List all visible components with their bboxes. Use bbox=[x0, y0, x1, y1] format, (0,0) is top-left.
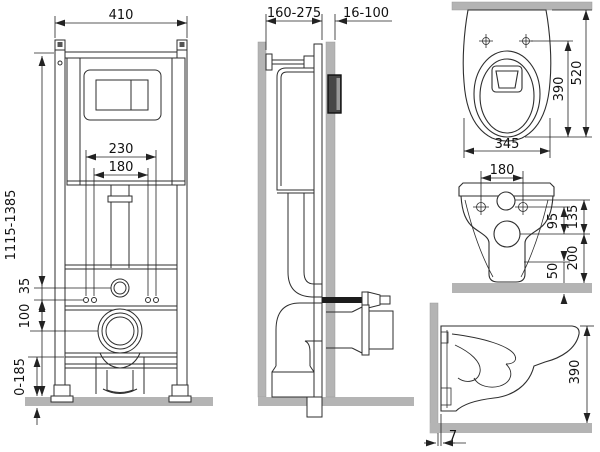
dim-bolts-to-drain: 100 bbox=[18, 304, 33, 329]
wall-strip-bowl-side bbox=[430, 303, 438, 433]
stud-inner-left bbox=[92, 298, 97, 303]
drain-bell-foot bbox=[107, 370, 133, 393]
dim-bowl-width: 345 bbox=[495, 137, 520, 152]
dim-hole-spacing: 180 bbox=[490, 163, 515, 178]
outlet-circle-rear bbox=[494, 221, 520, 247]
frame-left-rail bbox=[55, 44, 65, 397]
dim-bowl-length: 520 bbox=[570, 61, 585, 86]
drain-flare-right bbox=[310, 366, 314, 372]
frame-side-view bbox=[258, 42, 414, 417]
bowl-outline-top bbox=[463, 10, 551, 141]
technical-drawing-page: 410 230 180 1115-1385 35 100 0-185 bbox=[0, 0, 600, 452]
cistern-side-inner bbox=[281, 72, 314, 186]
dim-frame-height-range: 1115-1385 bbox=[4, 190, 19, 261]
dim-inlet-drop: 135 bbox=[566, 205, 581, 230]
foot-plate-right bbox=[169, 396, 191, 402]
stud-cap bbox=[380, 296, 390, 304]
fixing-stud-rod bbox=[322, 297, 362, 303]
bowl-rear-view bbox=[452, 183, 592, 293]
dim-holes-to-front: 390 bbox=[552, 77, 567, 102]
top-bracket-left-hook bbox=[58, 42, 63, 47]
stud-inner-right bbox=[146, 298, 151, 303]
dim-frame-depth-range: 160-275 bbox=[267, 6, 321, 21]
wall-bracket-plate bbox=[266, 54, 272, 70]
dim-facing-range: 16-100 bbox=[343, 6, 389, 21]
drain-bell bbox=[100, 353, 140, 368]
outlet-cone-top bbox=[352, 307, 362, 312]
dim-bolt-span-inner: 180 bbox=[109, 160, 134, 175]
cistern-side bbox=[277, 68, 314, 190]
outlet-cylinder bbox=[369, 311, 393, 349]
dim-bowl-height: 390 bbox=[568, 360, 583, 385]
floor-strip-rear-view bbox=[452, 283, 592, 293]
dim-outlet-height: 200 bbox=[566, 246, 581, 271]
top-cross-bar bbox=[65, 52, 177, 58]
dim-frame-width: 410 bbox=[109, 8, 134, 23]
outlet-flange bbox=[362, 305, 369, 355]
rail-bracket bbox=[304, 56, 314, 68]
access-box-highlight bbox=[337, 78, 341, 110]
stud-outer-right bbox=[154, 298, 159, 303]
wall-strip-top-view bbox=[452, 2, 592, 10]
frame-rail-side bbox=[314, 44, 322, 397]
flush-pipe-collar bbox=[108, 196, 132, 202]
top-bracket-right-hook bbox=[180, 42, 185, 47]
outlet-cone-bottom bbox=[352, 348, 362, 353]
stud-nut bbox=[368, 292, 380, 308]
foot-plate-left bbox=[51, 396, 73, 402]
dim-bolt-span-outer: 230 bbox=[109, 142, 134, 157]
frame-foot-side bbox=[307, 397, 322, 417]
dim-holes-drop: 95 bbox=[546, 213, 561, 230]
dim-wall-gap: 7 bbox=[449, 429, 457, 444]
drain-socket bbox=[272, 372, 314, 397]
inlet-circle-rear bbox=[497, 192, 515, 210]
drain-flare-left bbox=[272, 366, 276, 372]
wall-strip-side bbox=[258, 42, 266, 397]
frame-front-view bbox=[25, 40, 213, 406]
dim-skirt-height: 50 bbox=[546, 263, 561, 280]
dim-inlet-to-bolts: 35 bbox=[18, 278, 33, 295]
drain-circle-outer bbox=[98, 309, 142, 353]
floor-strip-side bbox=[258, 397, 414, 406]
dim-foot-adjust: 0-185 bbox=[13, 358, 28, 396]
stud-outer-left bbox=[84, 298, 89, 303]
bowl-side-outline bbox=[441, 326, 579, 411]
toilet-installation-drawing: 410 230 180 1115-1385 35 100 0-185 bbox=[0, 0, 600, 452]
